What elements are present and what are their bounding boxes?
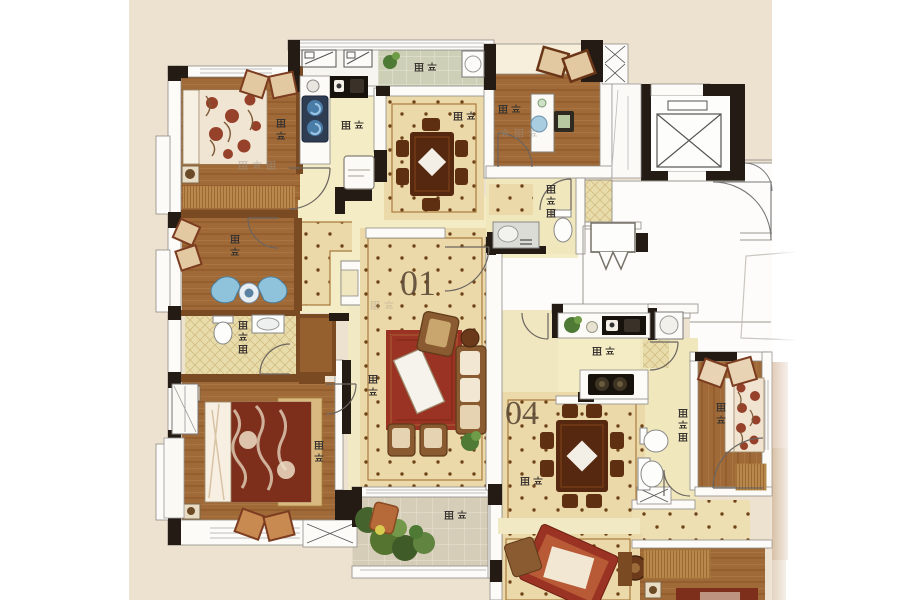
svg-text:04: 04 [505,395,539,432]
svg-text:01: 01 [400,263,436,303]
